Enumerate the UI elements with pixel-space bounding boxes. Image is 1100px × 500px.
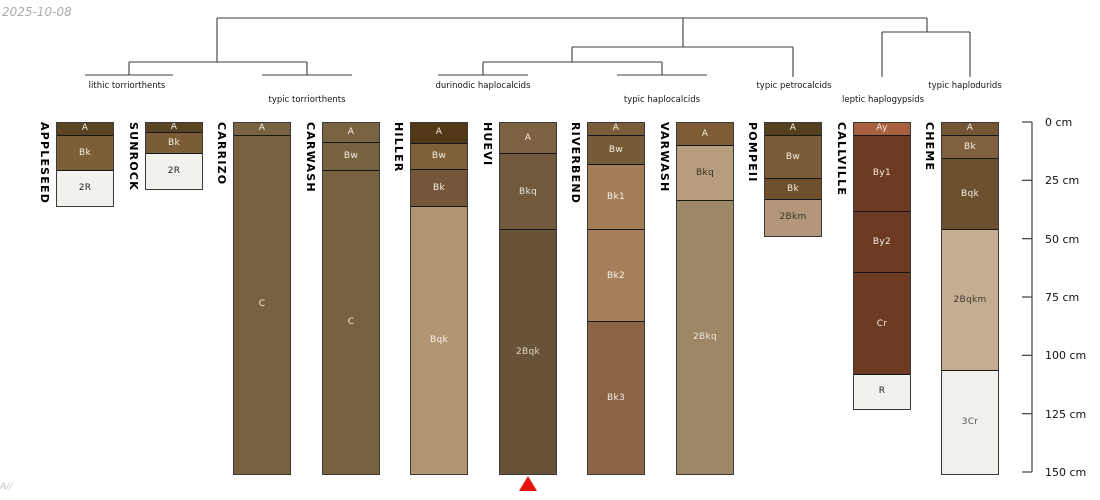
selected-pedon-marker — [519, 476, 537, 491]
soil-profile-dendrogram-figure: 2025-10-08 A// lithic torriorthentstypic… — [0, 0, 1100, 500]
depth-tick-label: 0 cm — [1045, 116, 1072, 129]
horizon-label: 2Bqk — [516, 348, 540, 357]
pedon-column-riverbend: ABwBk1Bk2Bk3 — [587, 122, 645, 475]
horizon-label: A — [525, 134, 531, 143]
depth-tick-label: 50 cm — [1045, 233, 1079, 246]
horizon-label: A — [613, 124, 619, 133]
pedon-column-carrizo: AC — [233, 122, 291, 475]
horizon-label: R — [879, 387, 886, 396]
pedon-column-pompeii: ABwBk2Bkm — [764, 122, 822, 237]
soil-horizon: 3Cr — [942, 370, 998, 474]
soil-horizon: Bw — [765, 135, 821, 179]
soil-horizon: Bk — [146, 132, 202, 154]
horizon-label: Bkq — [696, 169, 714, 178]
group-label: lithic torriorthents — [89, 81, 166, 91]
soil-horizon: 2R — [57, 170, 113, 206]
soil-horizon: A — [57, 123, 113, 135]
horizon-label: By2 — [873, 238, 891, 247]
horizon-label: Bk — [168, 139, 180, 148]
horizon-label: By1 — [873, 169, 891, 178]
soil-horizon: R — [854, 374, 910, 409]
group-label: typic haplocalcids — [624, 95, 700, 105]
soil-horizon: A — [323, 123, 379, 142]
horizon-label: Bk3 — [607, 394, 625, 403]
soil-horizon: Bk2 — [588, 229, 644, 322]
pedon-column-huevi: ABkq2Bqk — [499, 122, 557, 475]
pedon-name-cheme: CHEME — [923, 122, 936, 171]
pedon-name-hiller: HILLER — [392, 122, 405, 173]
horizon-label: Bk — [964, 143, 976, 152]
pedon-name-carwash: CARWASH — [304, 122, 317, 193]
soil-horizon: A — [234, 123, 290, 135]
horizon-label: A — [702, 130, 708, 139]
horizon-label: 2Bqkm — [953, 296, 986, 305]
soil-horizon: Bkq — [500, 153, 556, 230]
soil-horizon: 2Bkm — [765, 199, 821, 236]
horizon-label: Bk — [79, 149, 91, 158]
horizon-label: Bkq — [519, 188, 537, 197]
soil-horizon: A — [411, 123, 467, 143]
horizon-label: 2Bkq — [693, 333, 717, 342]
soil-horizon: Bk — [942, 135, 998, 159]
horizon-label: Cr — [877, 320, 888, 329]
watermark-text: A// — [0, 482, 12, 492]
horizon-label: A — [259, 124, 265, 133]
pedon-name-appleseed: APPLESEED — [38, 122, 51, 204]
soil-horizon: C — [234, 135, 290, 474]
soil-horizon: A — [500, 123, 556, 153]
soil-horizon: Bqk — [942, 158, 998, 230]
soil-horizon: Bqk — [411, 206, 467, 474]
depth-tick-label: 25 cm — [1045, 174, 1079, 187]
soil-horizon: 2Bqk — [500, 229, 556, 474]
pedon-column-appleseed: ABk2R — [56, 122, 114, 207]
horizon-label: Bw — [786, 153, 800, 162]
horizon-label: Bqk — [961, 190, 979, 199]
depth-tick-label: 150 cm — [1045, 466, 1086, 479]
soil-horizon: Bw — [323, 142, 379, 171]
pedon-column-carwash: ABwC — [322, 122, 380, 475]
pedon-name-sunrock: SUNROCK — [127, 122, 140, 191]
horizon-label: C — [259, 300, 266, 309]
horizon-label: Bk — [433, 184, 445, 193]
pedon-column-cheme: ABkBqk2Bqkm3Cr — [941, 122, 999, 475]
soil-horizon: A — [677, 123, 733, 145]
horizon-label: A — [348, 128, 354, 137]
soil-horizon: A — [942, 123, 998, 135]
depth-tick-label: 100 cm — [1045, 349, 1086, 362]
soil-horizon: Bk1 — [588, 164, 644, 230]
depth-tick-label: 125 cm — [1045, 408, 1086, 421]
horizon-label: 2Bkm — [779, 213, 806, 222]
soil-horizon: 2Bqkm — [942, 229, 998, 371]
horizon-label: A — [967, 124, 973, 133]
horizon-label: Bw — [344, 152, 358, 161]
pedon-name-varwash: VARWASH — [658, 122, 671, 192]
horizon-label: 2R — [79, 184, 92, 193]
pedon-name-callville: CALLVILLE — [835, 122, 848, 196]
depth-tick-label: 75 cm — [1045, 291, 1079, 304]
soil-horizon: By1 — [854, 135, 910, 212]
pedon-column-callville: AyBy1By2CrR — [853, 122, 911, 410]
soil-horizon: A — [765, 123, 821, 135]
soil-horizon: C — [323, 170, 379, 474]
horizon-label: A — [171, 123, 177, 132]
horizon-label: Bk1 — [607, 193, 625, 202]
soil-horizon: 2Bkq — [677, 200, 733, 474]
horizon-label: Ay — [876, 124, 887, 133]
soil-horizon: By2 — [854, 211, 910, 274]
pedon-column-varwash: ABkq2Bkq — [676, 122, 734, 475]
pedon-column-sunrock: ABk2R — [145, 122, 203, 190]
soil-horizon: Bw — [588, 135, 644, 165]
group-label: typic haplodurids — [928, 81, 1002, 91]
pedon-name-pompeii: POMPEII — [746, 122, 759, 183]
soil-horizon: Bk — [57, 135, 113, 171]
horizon-label: Bqk — [430, 336, 448, 345]
horizon-label: A — [82, 124, 88, 133]
group-label: typic petrocalcids — [756, 81, 831, 91]
horizon-label: A — [436, 128, 442, 137]
date-stamp: 2025-10-08 — [2, 5, 72, 19]
soil-horizon: A — [146, 123, 202, 132]
soil-horizon: Cr — [854, 272, 910, 375]
horizon-label: Bw — [609, 146, 623, 155]
pedon-name-carrizo: CARRIZO — [215, 122, 228, 185]
soil-horizon: A — [588, 123, 644, 135]
horizon-label: A — [790, 124, 796, 133]
soil-horizon: Bkq — [677, 145, 733, 201]
soil-horizon: Bk — [765, 178, 821, 200]
horizon-label: 2R — [168, 167, 181, 176]
horizon-label: Bk2 — [607, 272, 625, 281]
pedon-name-riverbend: RIVERBEND — [569, 122, 582, 204]
soil-horizon: 2R — [146, 153, 202, 189]
horizon-label: 3Cr — [962, 418, 979, 427]
pedon-column-hiller: ABwBkBqk — [410, 122, 468, 475]
horizon-label: Bw — [432, 152, 446, 161]
soil-horizon: Bk3 — [588, 321, 644, 474]
soil-horizon: Ay — [854, 123, 910, 135]
horizon-label: Bk — [787, 185, 799, 194]
soil-horizon: Bw — [411, 143, 467, 170]
group-label: leptic haplogypsids — [842, 95, 924, 105]
group-label: typic torriorthents — [268, 95, 345, 105]
soil-horizon: Bk — [411, 169, 467, 207]
group-label: durinodic haplocalcids — [435, 81, 530, 91]
horizon-label: C — [348, 318, 355, 327]
pedon-name-huevi: HUEVI — [481, 122, 494, 166]
